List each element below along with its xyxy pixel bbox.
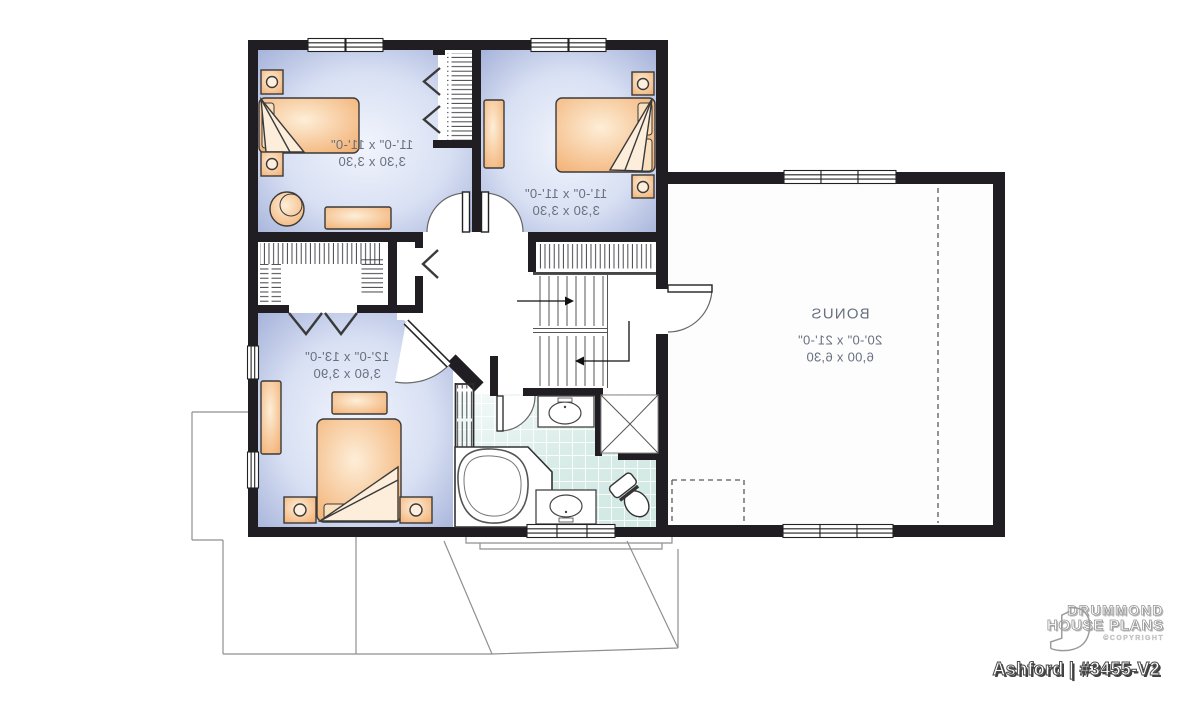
bonus-dims-m: 6,00 x 6,30 <box>798 348 882 365</box>
bedroom2-label: 11'-0" x 11'-0" 3,30 x 3,30 <box>331 136 414 170</box>
window-icon <box>527 525 615 538</box>
master-bedroom-label: 12'-0" x 13'-0" 3,60 x 3,90 <box>305 348 389 382</box>
brand-logo: DRUMMOND HOUSE PLANS ©COPYRIGHT <box>1047 603 1164 643</box>
floor-plan-canvas: 11'-0" x 11'-0" 3,30 x 3,30 11'-0" x 11'… <box>0 0 1200 711</box>
bed-icon <box>317 419 401 522</box>
shower-icon <box>601 395 658 453</box>
window-icon <box>531 39 606 52</box>
bedroom2-dims-ft: 11'-0" x 11'-0" <box>331 136 414 153</box>
dresser-icon <box>484 100 504 168</box>
drummond-logo-icon <box>1047 603 1095 655</box>
dresser-icon <box>261 381 281 454</box>
vanity-sink-icon <box>536 490 596 524</box>
bonus-room-name: BONUS <box>798 304 882 324</box>
plan-title: Ashford | #3455-V2 <box>993 659 1161 680</box>
chair-icon <box>270 192 304 226</box>
bedroom3-label: 11'-0" x 11'-0" 3,30 x 3,30 <box>525 185 608 219</box>
dresser-icon <box>332 392 387 414</box>
bedroom3-dims-m: 3,30 x 3,30 <box>525 202 608 219</box>
vanity-sink-icon <box>538 396 594 427</box>
bonus-room-label: BONUS 20'-0" x 21'-0" 6,00 x 6,30 <box>798 304 882 365</box>
bedroom2-dims-m: 3,30 x 3,30 <box>331 153 414 170</box>
bed-icon <box>556 98 655 172</box>
dresser-icon <box>325 207 391 229</box>
window-icon <box>783 525 893 538</box>
floor-plan-drawing <box>0 0 1200 711</box>
bonus-door-opening <box>656 289 668 334</box>
master-dims-m: 3,60 x 3,90 <box>305 365 389 382</box>
porch-step-lines <box>466 537 672 549</box>
bonus-dims-ft: 20'-0" x 21'-0" <box>798 331 882 348</box>
window-icon <box>784 171 896 184</box>
master-dims-ft: 12'-0" x 13'-0" <box>305 348 389 365</box>
bedroom3-dims-ft: 11'-0" x 11'-0" <box>525 185 608 202</box>
window-icon <box>308 39 383 52</box>
